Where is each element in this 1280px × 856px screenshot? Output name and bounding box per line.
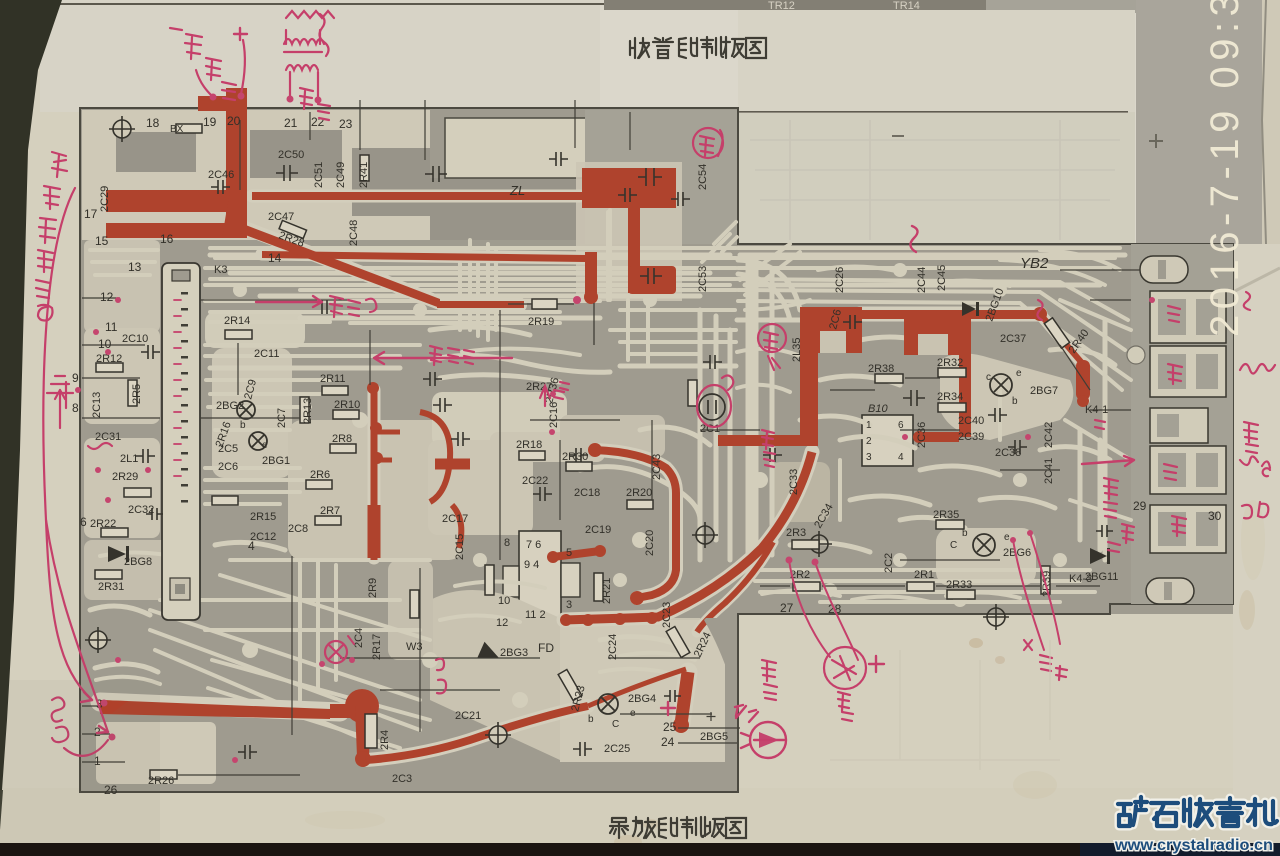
svg-text:www.crystalradio.cn: www.crystalradio.cn xyxy=(1114,837,1273,854)
